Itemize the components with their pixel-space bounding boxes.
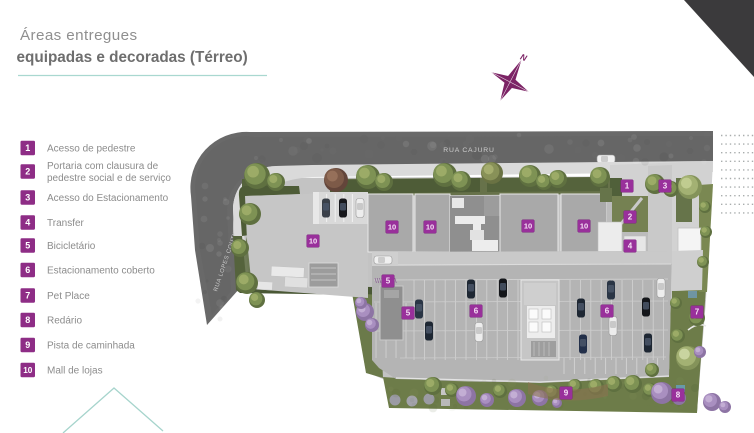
svg-text:10: 10 — [580, 222, 588, 231]
svg-text:10: 10 — [426, 223, 434, 232]
svg-text:6: 6 — [25, 265, 30, 275]
svg-text:RUA CAJURU: RUA CAJURU — [443, 147, 494, 154]
svg-text:4: 4 — [628, 242, 633, 251]
svg-text:3: 3 — [25, 193, 30, 203]
svg-text:1: 1 — [625, 182, 630, 191]
svg-text:10: 10 — [309, 237, 317, 246]
svg-text:4: 4 — [25, 218, 30, 228]
svg-text:7: 7 — [25, 291, 30, 301]
svg-text:Acesso do Estacionamento: Acesso do Estacionamento — [47, 193, 169, 204]
svg-text:6: 6 — [474, 307, 479, 316]
svg-text:Mall de lojas: Mall de lojas — [47, 365, 103, 376]
svg-text:Bicicletário: Bicicletário — [47, 241, 96, 252]
svg-text:8: 8 — [25, 315, 30, 325]
svg-text:5: 5 — [386, 277, 391, 286]
svg-text:1: 1 — [25, 143, 30, 153]
svg-text:Transfer: Transfer — [47, 218, 85, 229]
svg-text:10: 10 — [388, 223, 396, 232]
svg-text:7: 7 — [695, 308, 700, 317]
svg-text:9: 9 — [564, 389, 569, 398]
svg-text:Estacionamento coberto: Estacionamento coberto — [47, 265, 155, 276]
svg-text:3: 3 — [663, 182, 668, 191]
svg-text:Acesso de pedestre: Acesso de pedestre — [47, 143, 136, 154]
svg-text:equipadas e decoradas (Térreo): equipadas e decoradas (Térreo) — [17, 49, 248, 66]
svg-text:Redário: Redário — [47, 315, 82, 326]
svg-text:pedestre social e de serviço: pedestre social e de serviço — [47, 173, 171, 184]
svg-text:6: 6 — [605, 307, 610, 316]
svg-text:Portaria com clausura de: Portaria com clausura de — [47, 161, 159, 172]
svg-text:2: 2 — [25, 167, 30, 177]
svg-text:10: 10 — [23, 366, 33, 375]
svg-text:9: 9 — [25, 340, 30, 350]
svg-text:2: 2 — [628, 213, 633, 222]
svg-text:10: 10 — [524, 222, 532, 231]
svg-text:5: 5 — [406, 309, 411, 318]
svg-text:Áreas entregues: Áreas entregues — [20, 27, 137, 44]
svg-text:5: 5 — [25, 241, 30, 251]
svg-text:Pet Place: Pet Place — [47, 291, 90, 302]
svg-text:Pista de caminhada: Pista de caminhada — [47, 340, 135, 351]
svg-text:8: 8 — [676, 391, 681, 400]
